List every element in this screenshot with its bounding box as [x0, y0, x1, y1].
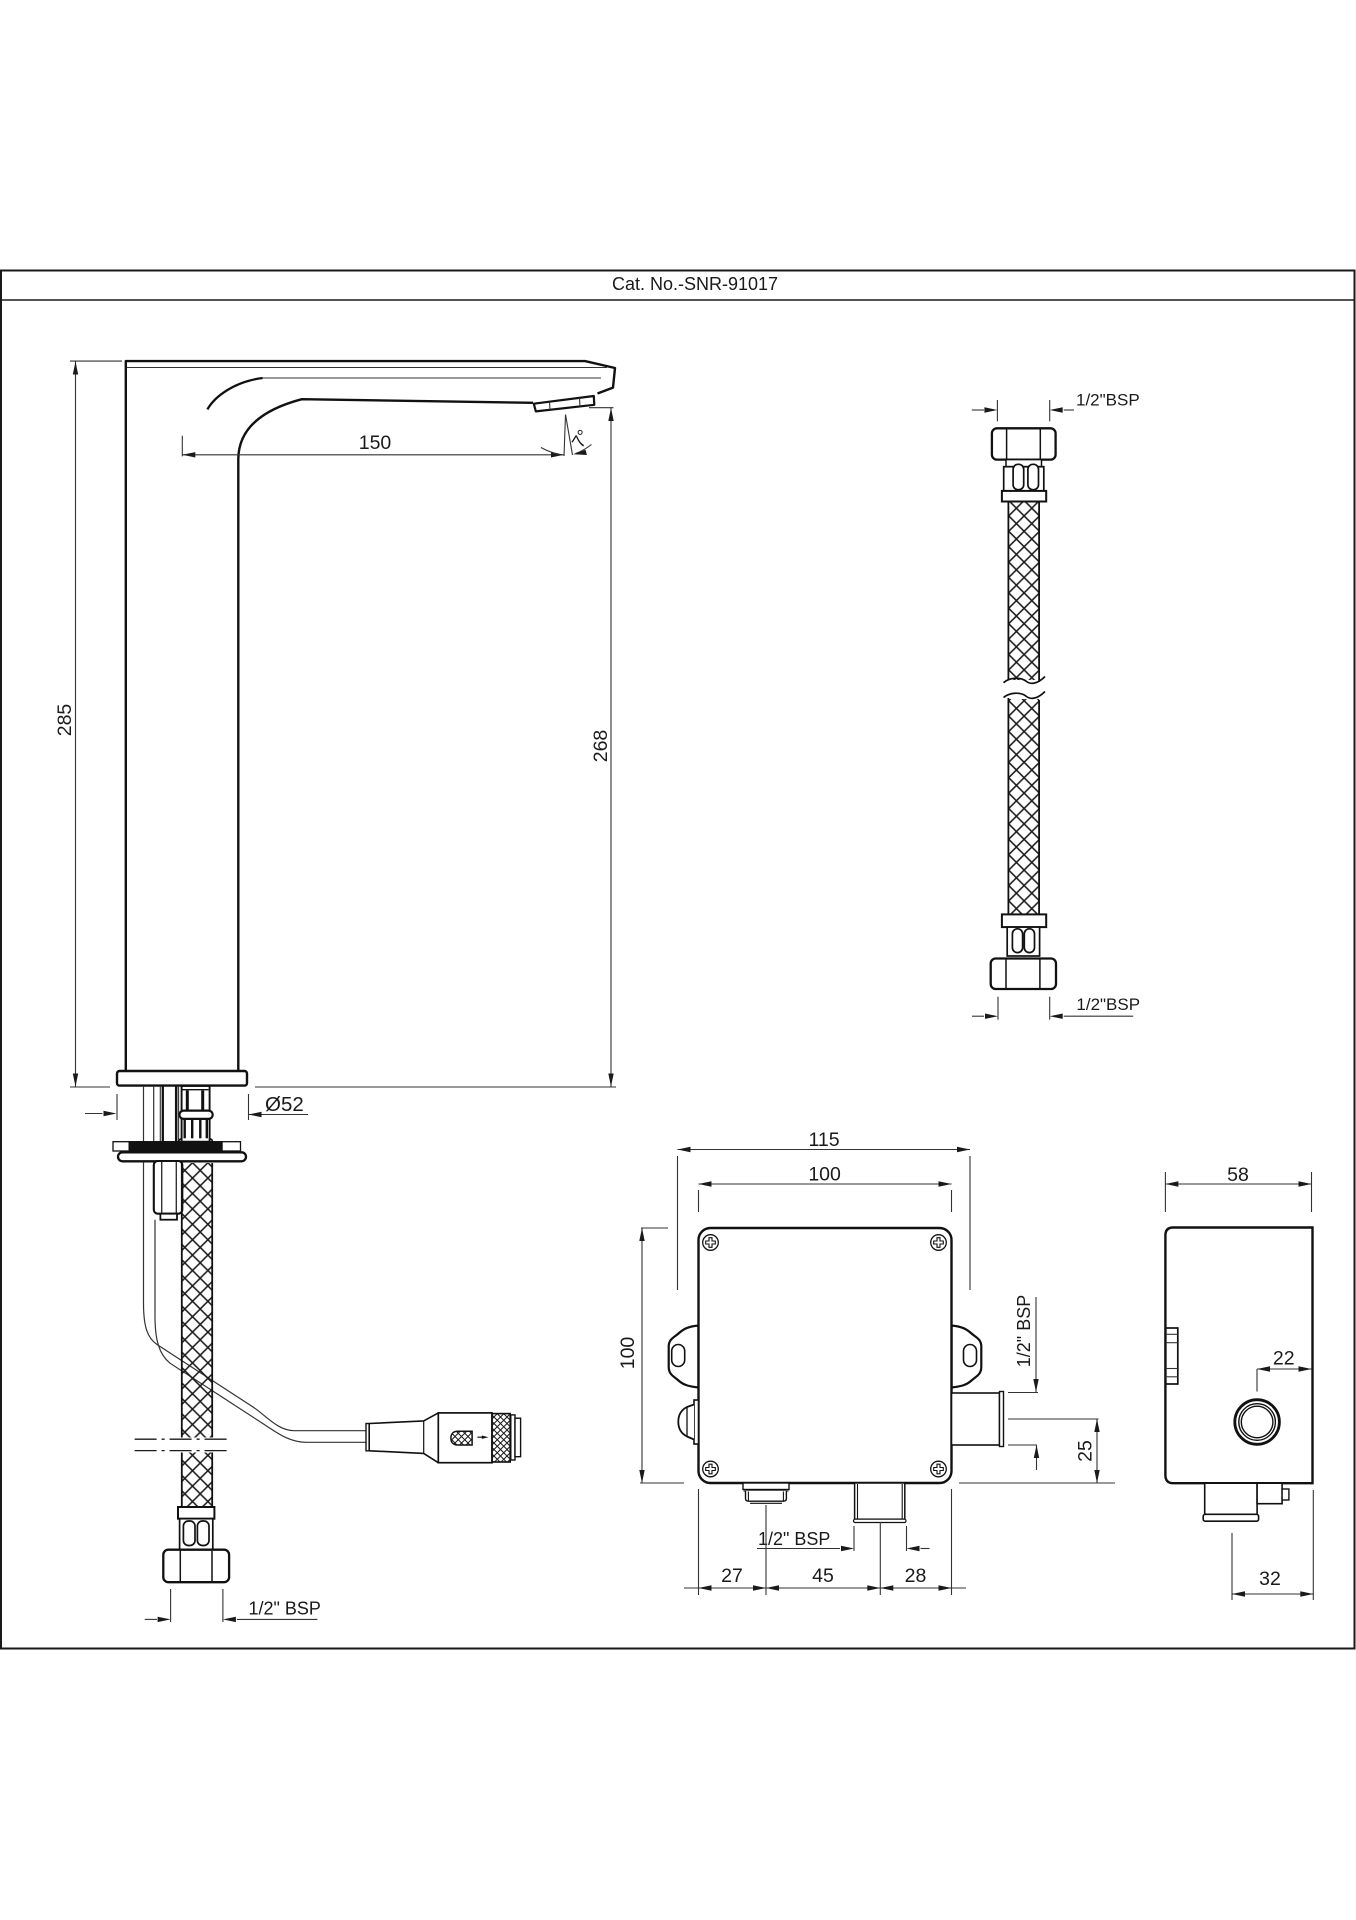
- svg-text:Cat. No.-SNR-91017: Cat. No.-SNR-91017: [612, 274, 778, 294]
- svg-text:Ø52: Ø52: [265, 1093, 304, 1116]
- svg-text:27: 27: [721, 1565, 743, 1587]
- svg-text:100: 100: [617, 1337, 639, 1370]
- svg-text:28: 28: [905, 1565, 927, 1587]
- svg-text:100: 100: [808, 1164, 841, 1186]
- svg-text:25: 25: [1075, 1440, 1097, 1462]
- svg-text:150: 150: [359, 432, 392, 454]
- svg-text:1/2"BSP: 1/2"BSP: [1076, 995, 1140, 1014]
- svg-text:115: 115: [808, 1129, 839, 1151]
- svg-text:268: 268: [590, 730, 612, 763]
- svg-text:1/2" BSP: 1/2" BSP: [758, 1529, 830, 1549]
- svg-text:58: 58: [1227, 1164, 1249, 1186]
- svg-text:285: 285: [54, 704, 76, 737]
- svg-text:1/2" BSP: 1/2" BSP: [1014, 1295, 1034, 1367]
- svg-text:1/2" BSP: 1/2" BSP: [249, 1599, 321, 1619]
- svg-text:1/2"BSP: 1/2"BSP: [1076, 390, 1140, 409]
- svg-text:45: 45: [812, 1565, 834, 1587]
- svg-text:32: 32: [1259, 1568, 1281, 1590]
- svg-text:22: 22: [1273, 1348, 1295, 1370]
